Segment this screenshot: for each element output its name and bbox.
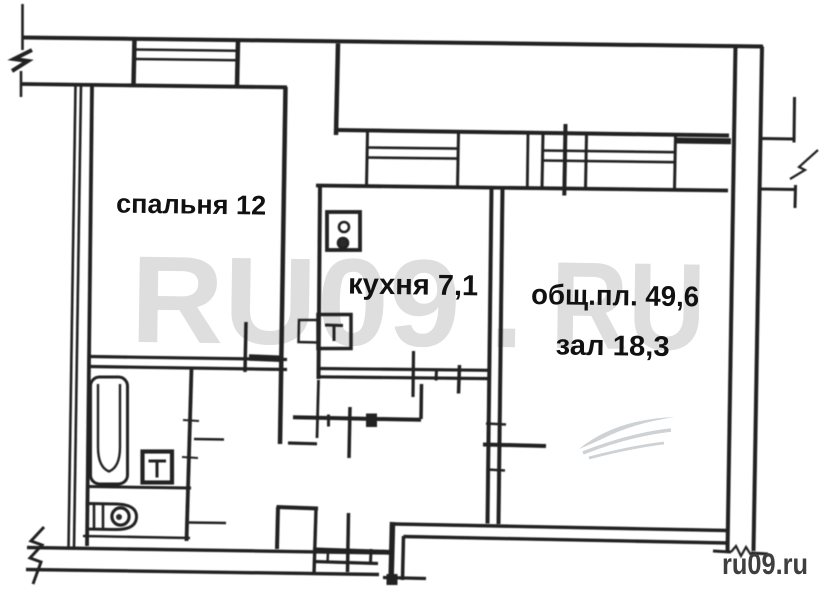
svg-text:.: .: [489, 236, 525, 374]
svg-text:зал 18,3: зал 18,3: [555, 329, 669, 363]
svg-text:спальня 12: спальня 12: [116, 189, 266, 221]
svg-text:общ.пл. 49,6: общ.пл. 49,6: [531, 279, 699, 313]
svg-text:ru09.ru: ru09.ru: [722, 548, 808, 581]
svg-text:кухня 7,1: кухня 7,1: [348, 269, 478, 303]
svg-text:RU09: RU09: [130, 231, 462, 374]
